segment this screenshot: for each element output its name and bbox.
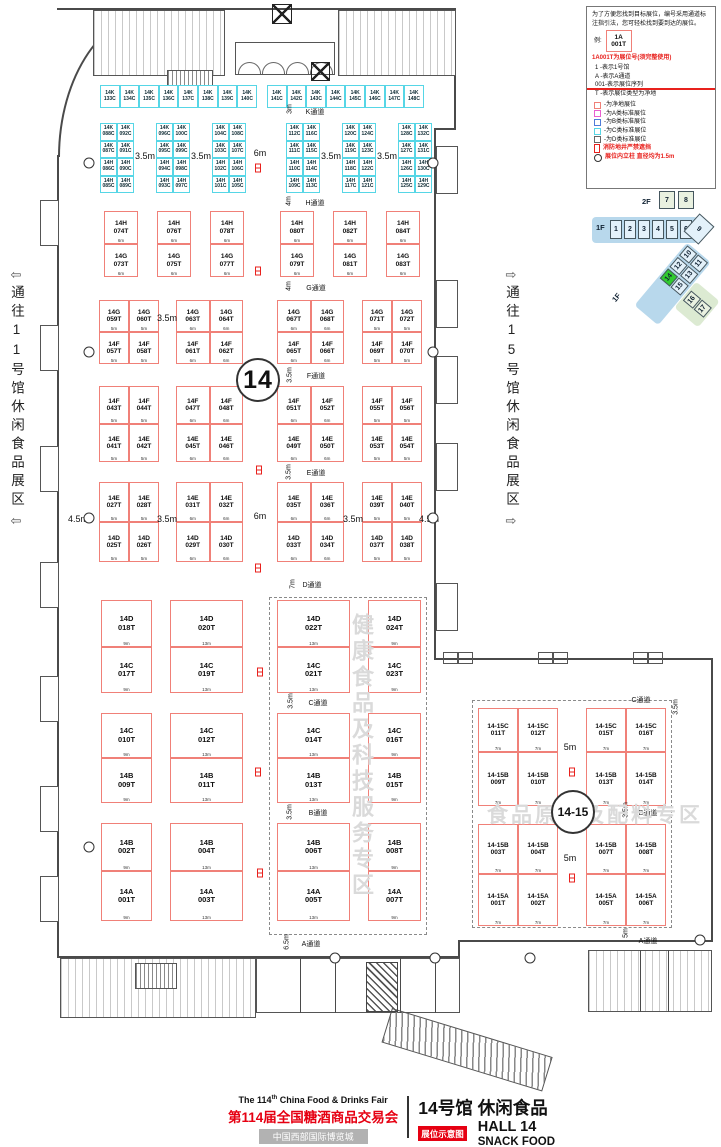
hall-category-en: SNACK FOOD [478,1136,555,1147]
booth-width-label: 5m [141,457,147,462]
booth-label: 14D025T [107,535,122,550]
booth-label: 14F048T [219,398,234,413]
booth: 14G059T5m [99,300,129,332]
booth: 14A003T13m [170,871,243,921]
booth: 14E053T5m [362,424,392,462]
booth-label: 14K140C [241,91,253,102]
booth-label: 14H118C [345,161,357,172]
arrow-right-icon: ⇨ [506,268,517,281]
booth-label: 14A007T [386,888,403,905]
aisle-label: K通道 [306,107,325,117]
aisle-label: 3.5m [286,464,293,480]
booth-label: 14F047T [185,398,200,413]
legend-key-label: -为C类标准展位 [604,127,646,136]
aisle-label: C通道 [308,698,327,708]
arrow-right-icon: ⇨ [506,514,517,527]
booth-width-label: 7m [535,869,541,874]
booth-width-label: 13m [309,688,318,693]
booth: 14H084T6m [386,211,420,244]
booth-label: 14H093C [159,179,171,190]
booth-label: 14-15A002T [527,893,548,908]
booth-label: 14K124C [362,126,374,137]
booth-width-label: 7m [495,921,501,926]
booth-label: 14K108C [232,126,244,137]
booth-width-label: 6m [400,239,406,244]
booth-width-label: 5m [111,557,117,562]
booth: 14F070T5m [392,332,422,364]
booth-label: 14K143C [310,91,322,102]
wall-alcove-right [436,146,458,194]
booth-label: 14G073T [114,253,129,268]
restroom-block-right [338,10,456,76]
corridor-wall-joint [458,940,460,958]
booth-label: 14-15C015T [595,723,616,738]
booth: 14B004T13m [170,823,243,871]
venue-name: 中国西部国际博览城 [259,1129,368,1144]
legend-intro: 为了方便您找到目标展位，编号采用通道标注指引法，您可轻松找到要到达的展位。 [592,11,710,28]
aisle-label: 6.5m [284,934,291,950]
booth-label: 14E036T [320,495,335,510]
booth-width-label: 6m [324,327,330,332]
booth-label: 14K095C [159,144,171,155]
room-divider [668,950,669,1012]
booth-label: 14H114C [306,161,318,172]
minimap-hall-3: 3 [638,220,650,239]
booth: 14H106C [229,158,246,176]
booth-label: 14E031T [185,495,200,510]
booth: 14-15B004T7m [518,824,558,874]
booth-label: 14F065T [286,341,301,356]
booth: 14H101C [212,176,229,194]
booth-label: 14F070T [400,341,415,356]
booth-width-label: 9m [391,798,397,803]
booth-label: 14G072T [400,309,415,324]
booth-width-label: 7m [643,921,649,926]
booth: 14H074T6m [104,211,138,244]
booth: 14H080T6m [280,211,314,244]
booth: 14K111C [286,141,303,159]
legend-key-item: -为D类标准展位 [594,136,710,145]
booth: 14G064T6m [210,300,244,332]
booth-width-label: 5m [111,419,117,424]
room-divider [640,950,641,1012]
booth-label: 14K136C [163,91,175,102]
booth: 14H093C [156,176,173,194]
booth-label: 14K107C [232,144,244,155]
booth-label: 14C019T [198,662,215,679]
legend-key-item: -为净地展位 [594,101,710,110]
legend-fire-note: 消防地井严禁遮挡 [594,144,710,153]
booth-label: 14H082T [343,220,358,235]
booth: 14E046T6m [210,424,244,462]
booth-width-label: 6m [291,557,297,562]
booth-label: 14H121C [362,179,374,190]
booth-width-label: 6m [223,557,229,562]
booth-width-label: 6m [291,419,297,424]
booth: 14E032T6m [210,482,244,522]
booth: 14H125C [398,176,415,194]
booth-label: 14G063T [185,309,200,324]
booth: 14K143C [306,85,326,108]
booth: 14H105C [229,176,246,194]
booth: 14E050T6m [311,424,345,462]
fire-hydrant-marker [256,466,262,475]
aisle-label: H通道 [305,198,324,208]
booth-width-label: 6m [223,419,229,424]
legend-key-item: -为B类标准展位 [594,118,710,127]
booth: 14-15B010T7m [518,752,558,806]
booth: 14K100C [173,123,190,141]
booth: 14K147C [385,85,405,108]
legend-example-hall: 1A [615,34,623,41]
booth: 14-15B013T7m [586,752,626,806]
corridor-door [443,652,473,664]
booth-label: 14E049T [286,436,301,451]
booth: 14K145C [345,85,365,108]
booth-label: 14K092C [120,126,132,137]
booth: 14H109C [286,176,303,194]
aisle-label: 3.5m [191,151,211,161]
booth-width-label: 13m [309,866,318,871]
booth: 14G075T6m [157,244,191,277]
booth-label: 14F044T [137,398,152,413]
aisle-label: 6m [254,511,267,521]
aisle-label: 3.5m [135,151,155,161]
booth-width-label: 6m [347,239,353,244]
wall-alcove-left [40,562,59,608]
booth: 14H089C [117,176,134,194]
booth-label: 14C016T [386,727,403,744]
booth-label: 14C023T [386,662,403,679]
fire-hydrant-marker [255,267,261,276]
booth: 14D037T5m [362,522,392,562]
booth-label: 14K104C [215,126,227,137]
booth-label: 14K123C [362,144,374,155]
aisle-label: 3.5m [673,699,680,715]
booth-label: 14D038T [400,535,415,550]
fire-hydrant-marker [257,869,263,878]
booth-width-label: 5m [111,359,117,364]
booth-width-label: 6m [190,557,196,562]
minimap-hall-2: 2 [624,220,636,239]
booth: 14E035T6m [277,482,311,522]
aisle-label: G通道 [306,283,325,293]
legend-pillar-note: 展位内立柱 直径均为1.5m [594,153,710,162]
booth-width-label: 6m [291,517,297,522]
booth-width-label: 9m [391,642,397,647]
booth-width-label: 9m [391,753,397,758]
booth-type-swatch [594,119,601,126]
fire-hydrant-marker [255,564,261,573]
booth: 14K134C [120,85,140,108]
booth: 14E036T6m [311,482,345,522]
aisle-label: F通道 [307,371,325,381]
booth: 14-15B008T7m [626,824,666,874]
booth-label: 14K138C [202,91,214,102]
booth: 14H076T6m [157,211,191,244]
booth-type-swatch [594,136,601,143]
booth-width-label: 5m [374,327,380,332]
booth-label: 14E045T [185,436,200,451]
fire-hydrant-marker [257,668,263,677]
booth: 14K104C [212,123,229,141]
booth-width-label: 6m [190,517,196,522]
booth-label: 14F058T [137,341,152,356]
booth-width-label: 6m [223,327,229,332]
booth-type-swatch [594,102,601,109]
booth-width-label: 9m [123,916,129,921]
booth-width-label: 5m [374,457,380,462]
booth: 14E042T5m [129,424,159,462]
booth-width-label: 7m [603,869,609,874]
booth: 14-15C016T7m [626,708,666,752]
booth-width-label: 9m [123,866,129,871]
booth-width-label: 6m [118,239,124,244]
booth-label: 14C012T [198,727,215,744]
aisle-label: 3.5m [377,151,397,161]
hall-title-block: 14号馆 展位示意图 休闲食品 HALL 14 SNACK FOOD [418,1095,555,1147]
booth: 14G063T6m [176,300,210,332]
booth-label: 14-15C011T [487,723,508,738]
arrow-left-icon: ⇦ [11,268,22,281]
aisle-label: 3.5m [288,693,295,709]
booth: 14H121C [359,176,376,194]
booth-label: 14G064T [219,309,234,324]
booth-width-label: 6m [190,419,196,424]
booth-width-label: 13m [202,916,211,921]
booth: 14K135C [139,85,159,108]
booth: 14-15B007T7m [586,824,626,874]
pillar-column [84,513,95,524]
booth-width-label: 5m [374,557,380,562]
fair-title-en: The 114th China Food & Drinks Fair [239,1095,388,1105]
booth-label: 14G060T [137,309,152,324]
booth: 14H126C [398,158,415,176]
booth-width-label: 6m [347,272,353,277]
booth-label: 14D030T [219,535,234,550]
fire-hydrant-marker [569,768,575,777]
zone-watermark-vertical: 健康食品及科技服务专区 [345,613,377,899]
booth: 14H098C [173,158,190,176]
booth-width-label: 6m [400,272,406,277]
booth-label: 14K091C [120,144,132,155]
booth-width-label: 5m [404,557,410,562]
corridor-door [633,652,663,664]
booth-label: 14C014T [305,727,322,744]
booth-label: 14B008T [386,839,403,856]
booth-label: 14K142C [290,91,302,102]
booth: 14E045T6m [176,424,210,462]
booth: 14G073T6m [104,244,138,277]
booth: 14-15C011T7m [478,708,518,752]
booth: 14K132C [415,123,432,141]
booth-label: 14D020T [198,615,215,632]
booth-width-label: 7m [643,747,649,752]
hall-name-en: HALL 14 [478,1120,537,1136]
booth-label: 14F052T [320,398,335,413]
hall-category-cn: 休闲食品 [478,1095,548,1120]
booth-width-label: 7m [535,747,541,752]
booth-label: 14K139C [221,91,233,102]
booth-width-label: 6m [324,419,330,424]
legend-code-explanation: 1 -表示1号馆A -表示A通道001-表示展位序列T -表示展位类型为净地 [592,64,710,99]
booth-label: 14K131C [418,144,430,155]
booth-width-label: 6m [171,239,177,244]
aisle-label: A通道 [639,936,658,946]
aisle-label: 3m [287,104,294,114]
booth-width-label: 6m [190,457,196,462]
room-divider [300,958,301,1013]
booth-label: 14A005T [305,888,322,905]
booth: 14D033T6m [277,522,311,562]
aisle-label: B通道 [309,808,328,818]
booth-type-swatch [594,128,601,135]
booth-label: 14E054T [400,436,415,451]
wall-alcove-right [436,583,458,631]
aisle-label: A通道 [302,939,321,949]
booth-width-label: 6m [291,359,297,364]
legend-fire-text: 消防地井严禁遮挡 [603,144,651,153]
booth: 14-15C015T7m [586,708,626,752]
booth: 14K128C [398,123,415,141]
pillar-column [84,347,95,358]
booth-label: 14-15A006T [635,893,656,908]
booth: 14K144C [326,85,346,108]
booth: 14C021T13m [277,647,350,693]
booth-label: 14K100C [176,126,188,137]
booth: 14E031T6m [176,482,210,522]
booth: 14B006T13m [277,823,350,871]
booth-label: 14D037T [370,535,385,550]
footer: The 114th China Food & Drinks Fair 第114届… [228,1095,555,1147]
booth-type-swatch [594,110,601,117]
booth: 14A001T9m [101,871,152,921]
booth-label: 14E039T [370,495,385,510]
booth-label: 14K128C [401,126,413,137]
aisle-label: 3.5m [287,367,294,383]
pillar-column [84,158,95,169]
booth: 14H117C [342,176,359,194]
booth-width-label: 6m [324,457,330,462]
booth-label: 14B004T [198,839,215,856]
aisle-label: E通道 [307,468,326,478]
booth-label: 14-15B003T [487,842,508,857]
plan-tag: 展位示意图 [418,1126,467,1141]
escalator-hatch [366,962,398,1012]
direction-label-right: ⇨ 通往15号馆休闲食品展区 ⇨ [501,268,521,527]
booth: 14G072T5m [392,300,422,332]
booth-label: 14H110C [289,161,301,172]
wall-alcove-left [40,325,59,371]
aisle-label: 4m [286,196,293,206]
booth-label: 14F043T [107,398,122,413]
corridor-wall-bottom [458,940,713,942]
booth-width-label: 6m [294,239,300,244]
booth-label: 14K141C [271,91,283,102]
booth-width-label: 5m [374,517,380,522]
corridor-wall-right [711,658,713,942]
booth-label: 14K144C [330,91,342,102]
booth: 14H110C [286,158,303,176]
minimap-floor-label: 1F [610,291,623,303]
booth-label: 14H106C [232,161,244,172]
fire-hydrant-marker [255,768,261,777]
minimap-floor-label: 2F [642,197,651,206]
wall-alcove-left [40,876,59,922]
aisle-label: D通道 [302,580,321,590]
booth: 14K127C [398,141,415,159]
booth-label: 14K088C [103,126,115,137]
booth: 14K088C [100,123,117,141]
wall-left [57,155,59,958]
aisle-label: 6m [254,148,267,158]
service-block-bottom-middle [256,958,460,1013]
booth-width-label: 6m [324,557,330,562]
pillar-column [84,842,95,853]
aisle-label: 7m [290,579,297,589]
booth: 14-15A002T7m [518,874,558,926]
legend-key-label: -为净地展位 [604,101,636,110]
booth-label: 14D034T [320,535,335,550]
booth-label: 14A003T [198,888,215,905]
booth-label: 14K120C [345,126,357,137]
booth-label: 14H122C [362,161,374,172]
booth-width-label: 5m [111,457,117,462]
booth: 14C019T13m [170,647,243,693]
booth: 14F061T6m [176,332,210,364]
booth: 14B013T13m [277,758,350,803]
booth-width-label: 6m [223,457,229,462]
booth-label: 14G075T [167,253,182,268]
booth-label: 14H089C [120,179,132,190]
booth-label: 14B006T [305,839,322,856]
footer-divider [407,1096,409,1138]
booth-label: 14E041T [107,436,122,451]
minimap-floor-label: 1F [596,223,605,232]
fire-hydrant-marker [255,164,261,173]
booth-label: 14H074T [114,220,129,235]
booth: 14K107C [229,141,246,159]
legend-key-label: -为A类标准展位 [604,110,646,119]
booth: 14G079T6m [280,244,314,277]
legend-key-label: -为B类标准展位 [604,118,646,127]
booth: 14F062T6m [210,332,244,364]
booth: 14K108C [229,123,246,141]
booth-width-label: 9m [391,866,397,871]
booth: 14F056T5m [392,386,422,424]
booth-width-label: 13m [309,642,318,647]
booth-label: 14K146C [369,91,381,102]
booth-label: 14K116C [306,126,318,137]
booth: 14D025T5m [99,522,129,562]
booth: 14K148C [404,85,424,108]
booth-label: 14H105C [232,179,244,190]
booth-label: 14F061T [185,341,200,356]
booth: 14B011T13m [170,758,243,803]
aisle-label: 5m [564,853,577,863]
booth-label: 14D029T [185,535,200,550]
booth-width-label: 7m [603,921,609,926]
booth-width-label: 5m [374,359,380,364]
booth: 14A005T13m [277,871,350,921]
booth-width-label: 5m [141,419,147,424]
booth-label: 14F062T [219,341,234,356]
booth: 14-15A006T7m [626,874,666,926]
wall-alcove-left [40,446,59,492]
booth-label: 14K133C [104,91,116,102]
aisle-label: C通道 [631,695,650,705]
booth-label: 14H101C [215,179,227,190]
